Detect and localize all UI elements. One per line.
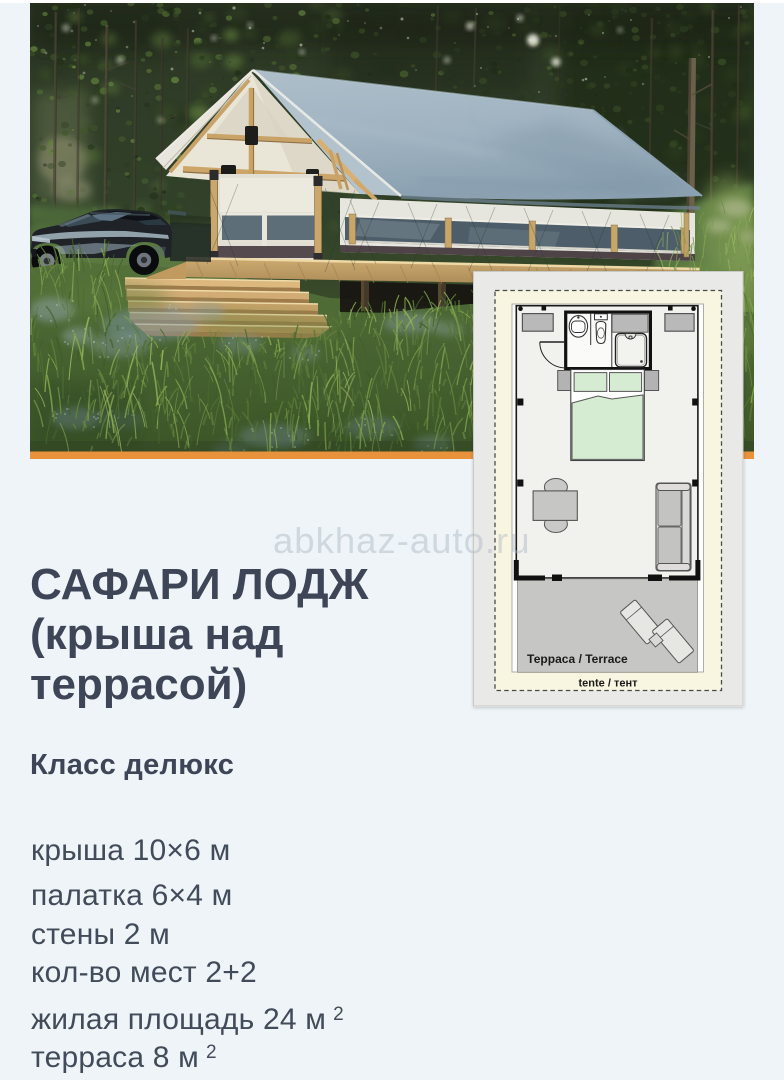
svg-text:Терраса / Terrace: Терраса / Terrace	[527, 652, 628, 666]
svg-text:tente / тент: tente / тент	[579, 678, 639, 690]
